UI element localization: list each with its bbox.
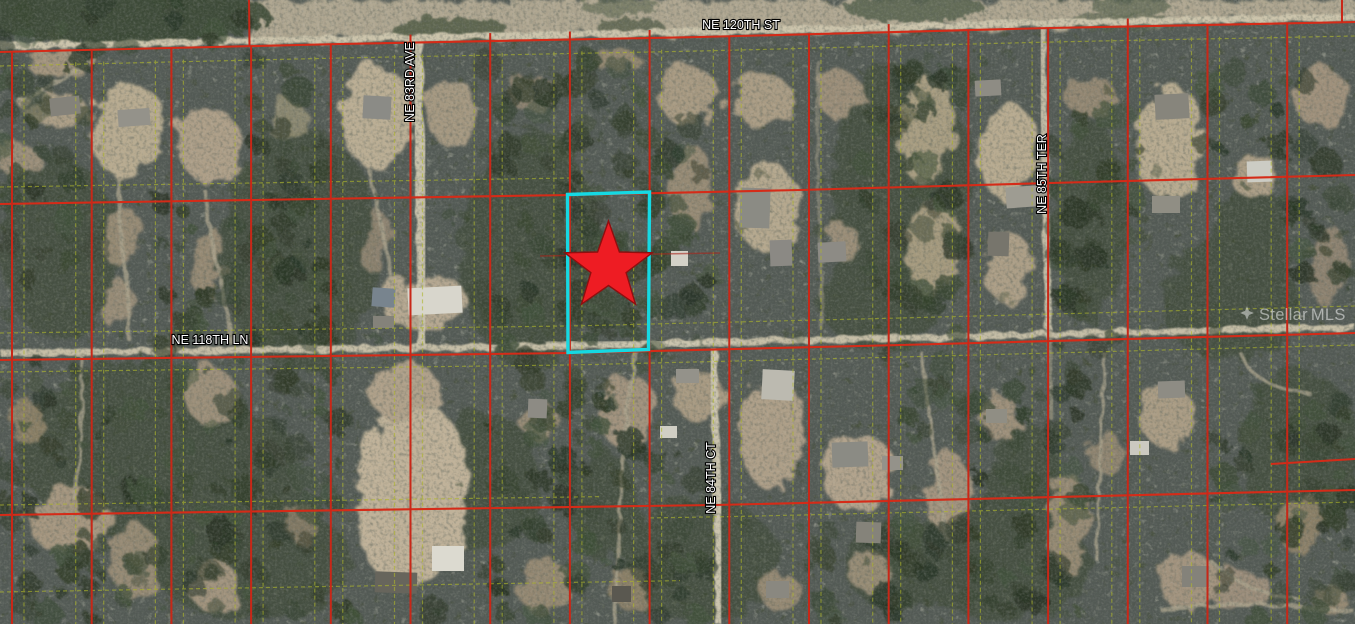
svg-text:NE 83RD AVE: NE 83RD AVE: [403, 42, 417, 122]
svg-text:NE 84TH CT: NE 84TH CT: [704, 442, 718, 514]
svg-text:NE 120TH ST: NE 120TH ST: [702, 18, 780, 32]
svg-text:NE 85TH TER: NE 85TH TER: [1035, 134, 1049, 214]
svg-text:NE 118TH LN: NE 118TH LN: [172, 333, 249, 347]
svg-text:StellarMLS: StellarMLS: [1259, 306, 1346, 324]
